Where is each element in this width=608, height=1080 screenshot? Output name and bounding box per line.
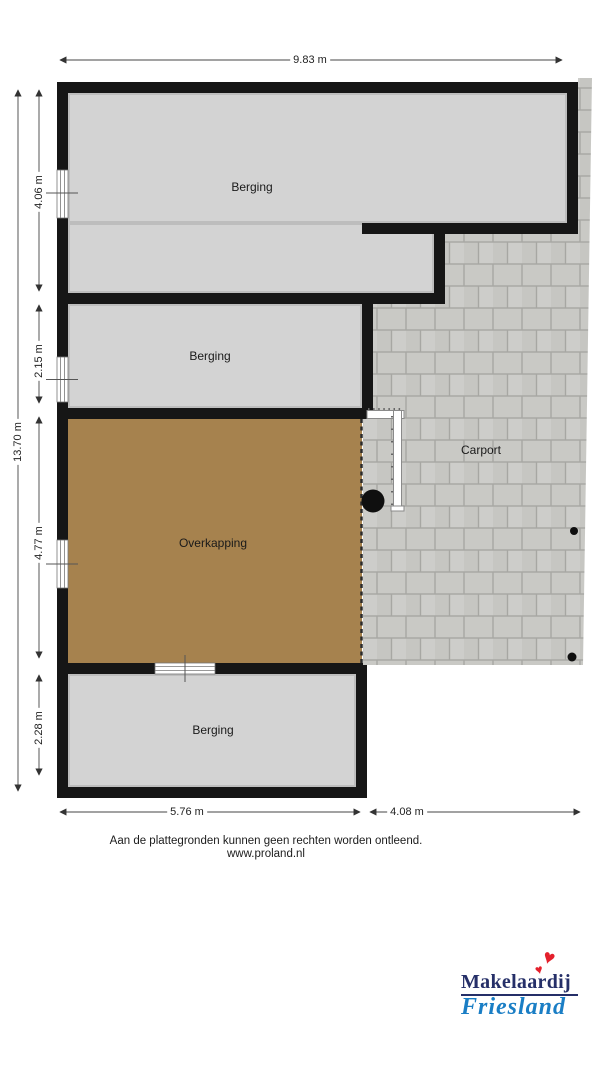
dim-left-4-77: 4.77 m (33, 523, 45, 563)
room-label-carport: Carport (461, 443, 501, 457)
post-marker-small-1 (570, 527, 578, 535)
dim-total-height: 13.70 m (12, 419, 24, 465)
post-marker-large (362, 490, 385, 513)
logo-text-friesland: Friesland (461, 994, 566, 1021)
dim-left-2-15: 2.15 m (33, 341, 45, 381)
room-label-berging-top: Berging (231, 180, 272, 194)
room-label-berging-middle: Berging (189, 349, 230, 363)
window-berging-middle (46, 357, 78, 402)
dim-left-4-06: 4.06 m (33, 172, 45, 212)
logo-text-makelaardij: Makelaardij (461, 971, 571, 994)
dim-left-2-28: 2.28 m (33, 708, 45, 748)
dim-total-width: 9.83 m (290, 54, 330, 66)
window-berging-top (46, 170, 78, 218)
floorplan-page: Berging Berging Overkapping Carport Berg… (0, 0, 608, 1080)
window-overkapping (46, 540, 78, 588)
website-text: www.proland.nl (46, 848, 486, 861)
disclaimer-text: Aan de plattegronden kunnen geen rechten… (46, 835, 486, 848)
dim-bottom-5-76: 5.76 m (167, 806, 207, 818)
post-marker-small-2 (568, 653, 577, 662)
footer-disclaimer: Aan de plattegronden kunnen geen rechten… (46, 835, 486, 861)
plan-graphics (0, 0, 608, 1080)
carport-paving (363, 78, 592, 665)
window-berging-bottom (155, 655, 215, 682)
room-label-overkapping: Overkapping (179, 536, 247, 550)
dim-bottom-4-08: 4.08 m (387, 806, 427, 818)
room-label-berging-bottom: Berging (192, 723, 233, 737)
